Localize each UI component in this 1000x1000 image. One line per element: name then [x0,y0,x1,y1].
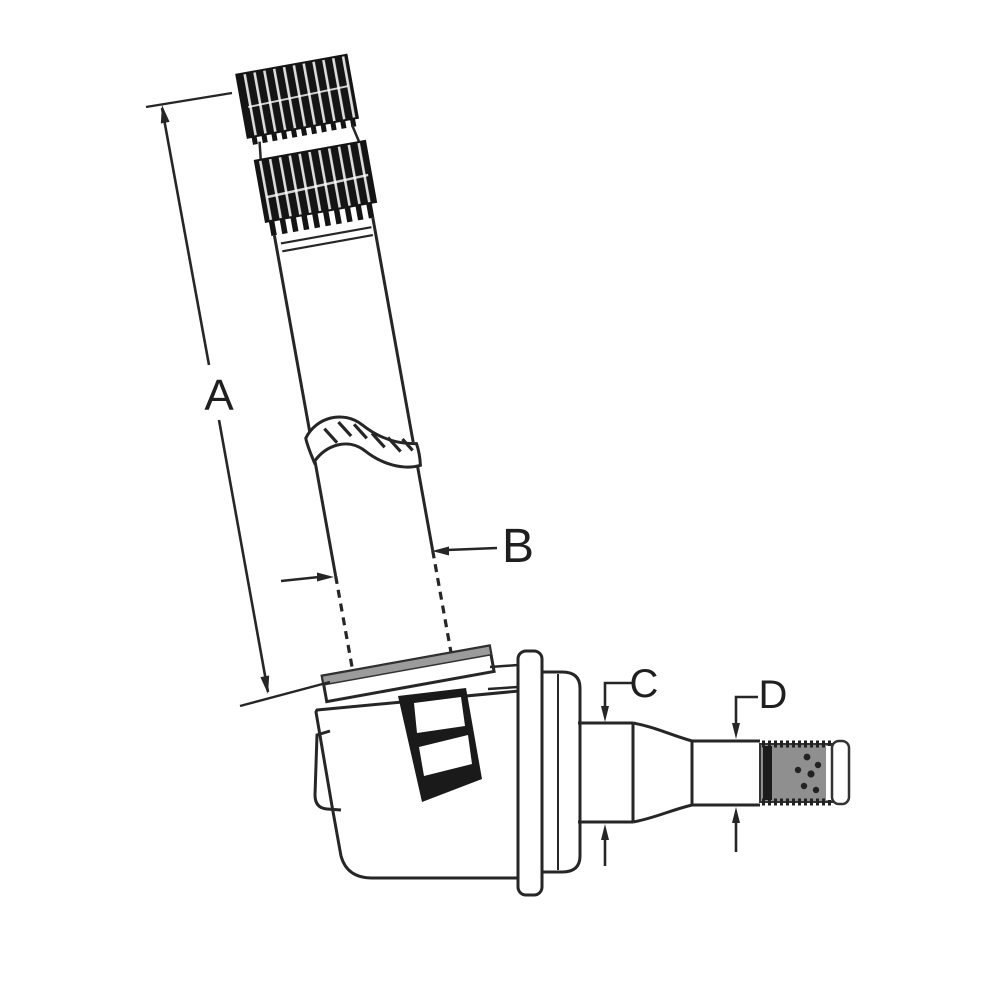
shaft-break-symbol [303,404,421,485]
dim-c-arrow-bottom [601,824,609,840]
shaft-upper-left-edge [274,235,310,435]
dim-d-arrow-bottom [732,807,740,823]
groove-line-2 [282,235,373,251]
dim-c-arrow-top [601,706,609,722]
spindle-end-cap [832,741,849,804]
spindle-technical-drawing: A B C D [0,0,1000,1000]
dim-a-line-upper [162,108,209,365]
spline-neck-left-line [258,142,263,160]
flange-plate [518,651,542,895]
taper-top-edge [633,723,692,741]
dim-d-arrow-top [732,723,740,739]
thread-dark-band [763,746,772,800]
spindle-group [518,651,849,895]
bearing-drum [542,672,580,872]
shaft-lower-left-edge [315,462,336,576]
dim-c-leader [605,683,632,708]
taper-bottom-edge [633,805,692,822]
dim-a-arrow-top [161,105,170,124]
dim-a-line-lower [219,420,268,692]
dim-a-arrow-bottom [260,676,269,695]
dim-b-leader-left [281,577,319,581]
dim-label-c: C [630,662,659,706]
shaft-hidden-left-edge [336,576,353,670]
spline-neck-right-line [352,124,359,142]
shaft-hidden-right-edge [433,550,451,652]
dim-label-d: D [759,673,788,717]
dim-a-ext-line-bottom [240,682,330,706]
dim-d-leader [736,697,758,725]
dim-label-a: A [204,371,234,420]
dim-a-ext-line-top [146,93,232,107]
shaft-lower-right-edge [417,466,432,551]
dim-b-leader-right [447,548,497,550]
dim-b-arrow-left [317,573,334,582]
neck-line-2 [488,687,518,689]
shaft-upper-right-edge [373,218,413,442]
dim-label-b: B [502,520,534,573]
shaft-group [215,48,494,701]
